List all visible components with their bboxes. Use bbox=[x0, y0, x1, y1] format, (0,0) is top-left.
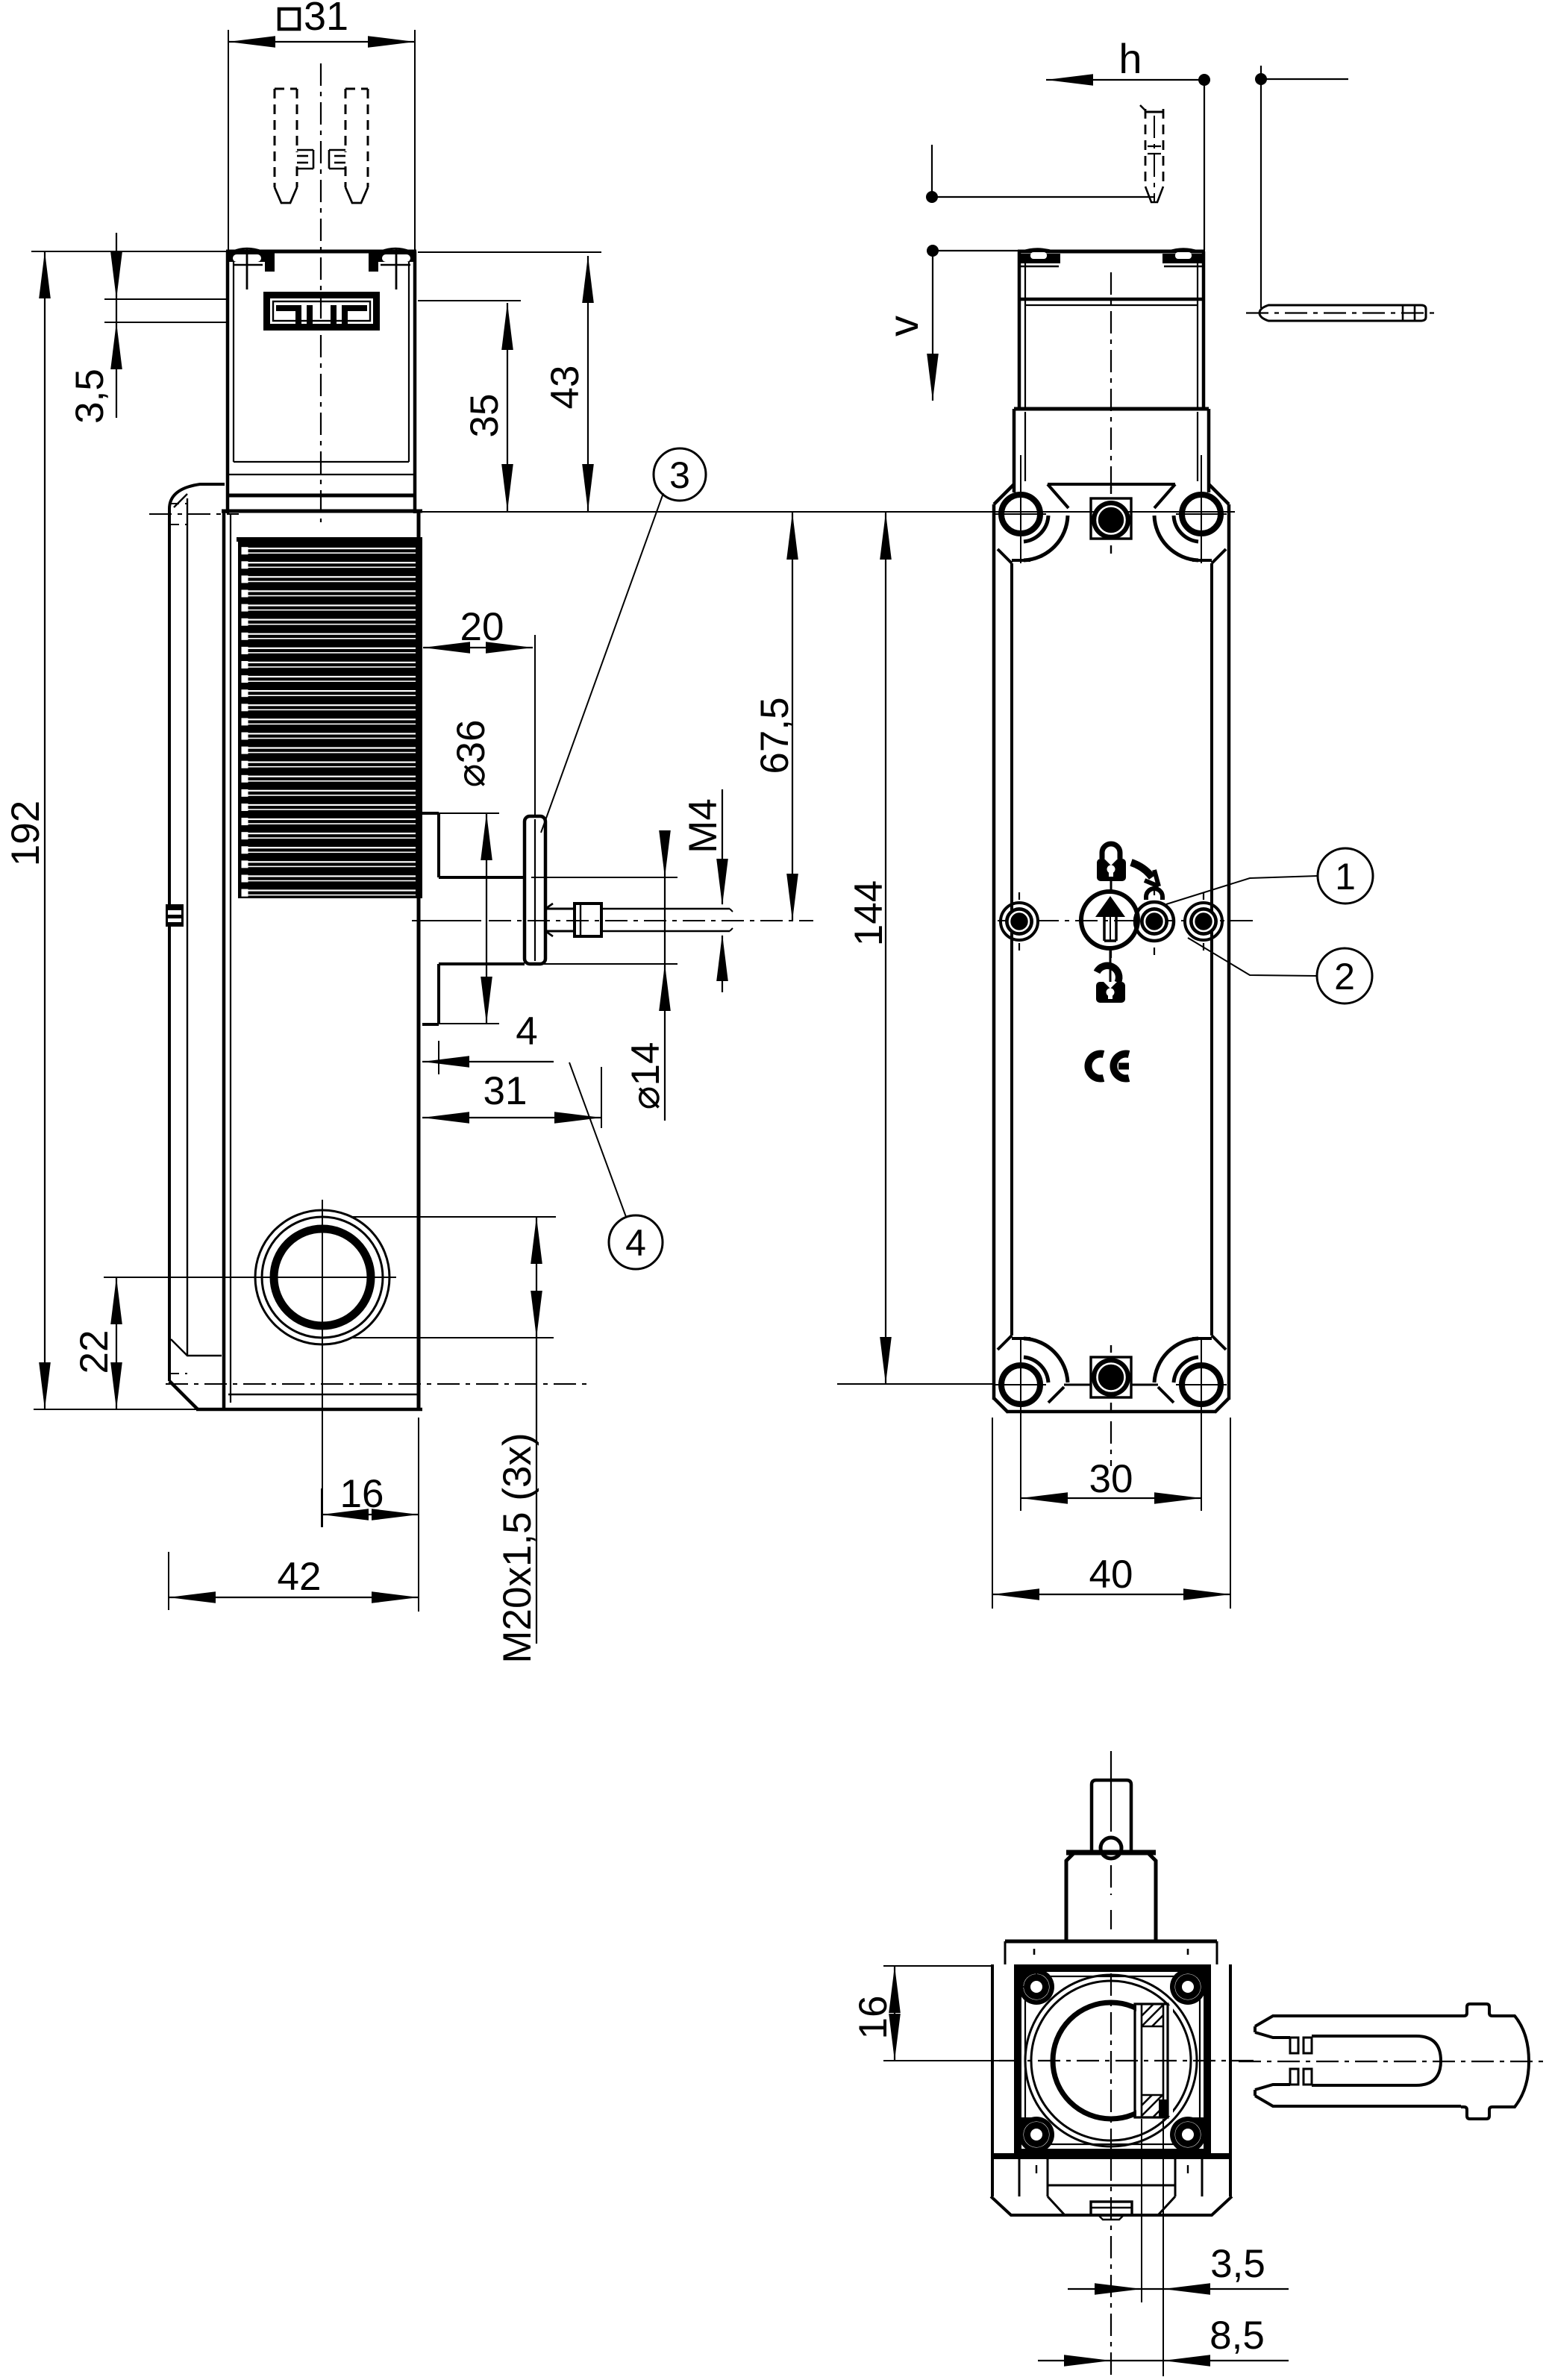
svg-text:31: 31 bbox=[304, 0, 348, 39]
svg-text:192: 192 bbox=[4, 801, 48, 866]
svg-text:40: 40 bbox=[1089, 1553, 1133, 1597]
svg-text:30: 30 bbox=[1089, 1457, 1133, 1501]
svg-text:35: 35 bbox=[463, 394, 507, 438]
svg-text:v: v bbox=[880, 316, 927, 336]
svg-text:4: 4 bbox=[625, 1222, 646, 1264]
svg-text:2: 2 bbox=[1334, 956, 1355, 998]
svg-text:h: h bbox=[1118, 35, 1142, 82]
svg-text:43: 43 bbox=[543, 366, 587, 410]
svg-text:67,5: 67,5 bbox=[753, 697, 797, 774]
svg-text:3: 3 bbox=[669, 454, 690, 496]
svg-text:4: 4 bbox=[516, 1009, 537, 1053]
svg-text:M20x1,5 (3x): M20x1,5 (3x) bbox=[495, 1432, 539, 1663]
svg-text:8,5: 8,5 bbox=[1210, 2314, 1265, 2358]
svg-text:22: 22 bbox=[72, 1330, 116, 1374]
svg-text:3,5: 3,5 bbox=[68, 369, 112, 424]
svg-text:42: 42 bbox=[278, 1555, 322, 1599]
svg-text:⌀36: ⌀36 bbox=[449, 720, 493, 788]
svg-text:M4: M4 bbox=[681, 798, 725, 854]
svg-text:31: 31 bbox=[484, 1069, 528, 1113]
svg-text:⌀14: ⌀14 bbox=[624, 1042, 668, 1110]
svg-text:144: 144 bbox=[847, 880, 891, 946]
svg-text:16: 16 bbox=[851, 1996, 895, 2040]
svg-text:3,5: 3,5 bbox=[1210, 2242, 1265, 2286]
svg-text:1: 1 bbox=[1335, 856, 1356, 898]
